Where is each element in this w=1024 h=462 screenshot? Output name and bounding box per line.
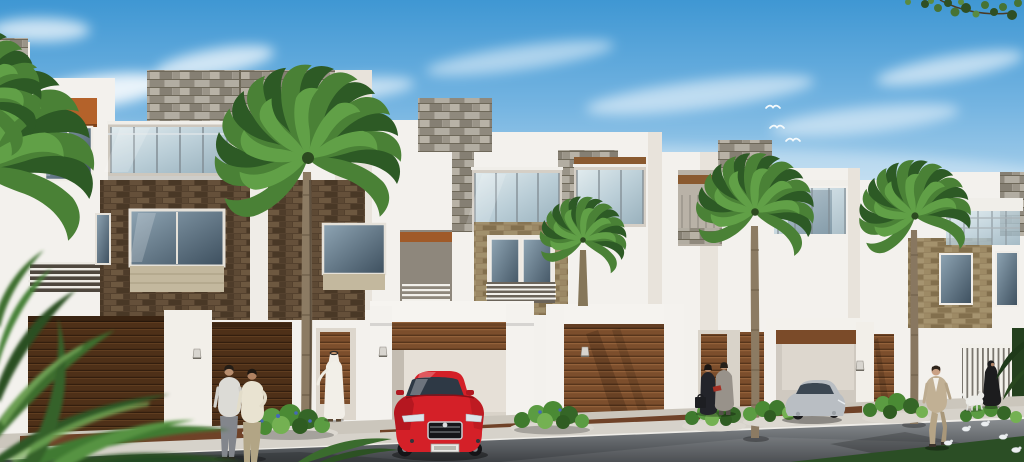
pillar-1: [164, 310, 212, 446]
railing-left-building: [28, 262, 107, 292]
recessed-balcony-left-mid: [400, 230, 452, 310]
glass-balcony-left: [104, 121, 233, 180]
stone-roof-block-mid: [418, 98, 492, 152]
architectural-rendering: [0, 0, 1024, 462]
window-brick-right: [323, 224, 385, 290]
window-brick-partial: [96, 214, 110, 264]
briefcase: [695, 397, 706, 408]
window-brick-large: [130, 210, 224, 292]
